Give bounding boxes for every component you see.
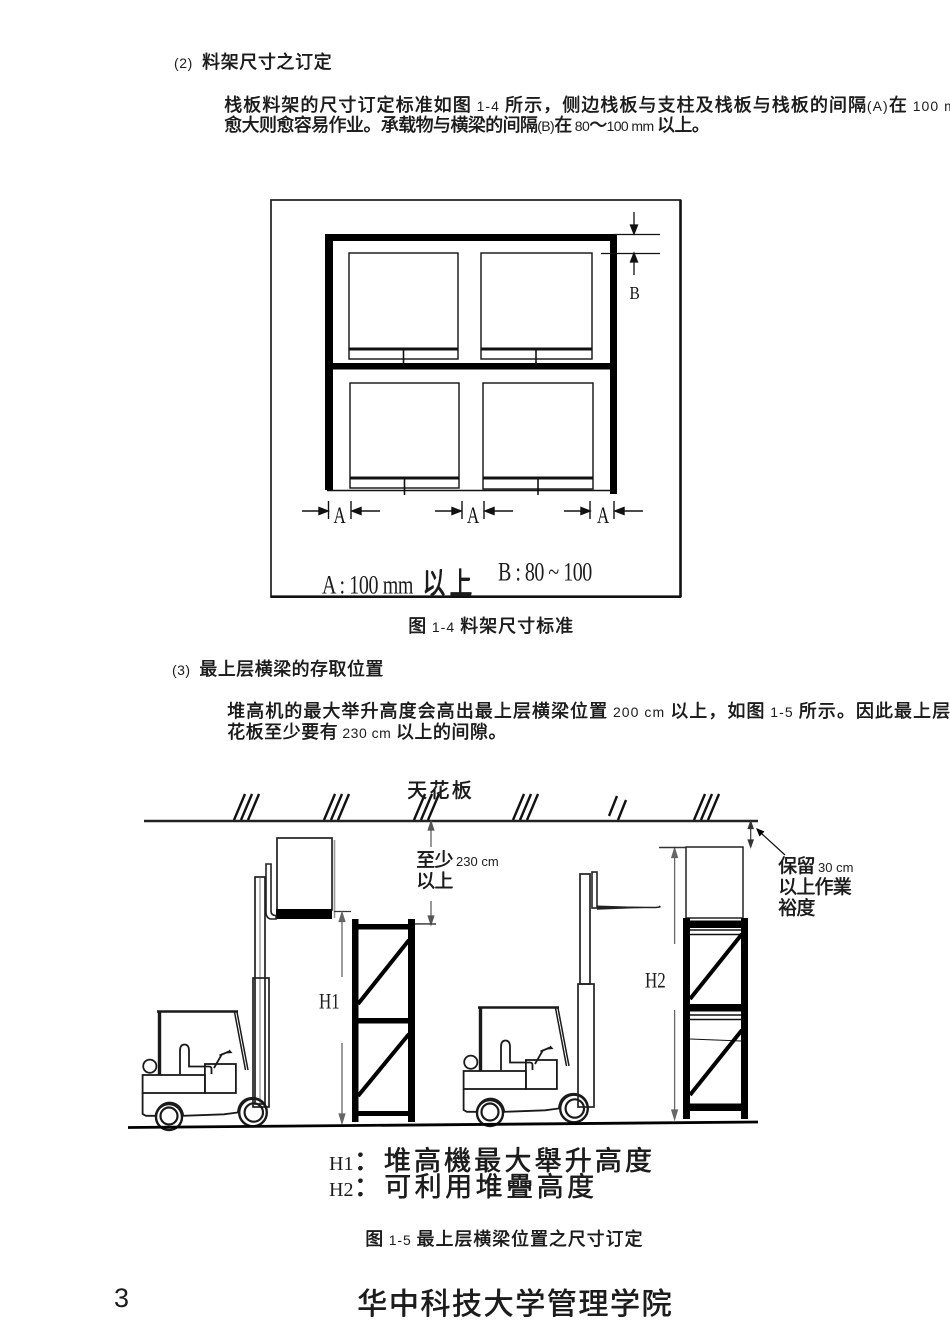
svg-text:A: A [334, 504, 347, 529]
svg-text:A: A [467, 504, 480, 529]
svg-text:B: B [630, 283, 640, 303]
svg-text:A: A [597, 504, 610, 529]
